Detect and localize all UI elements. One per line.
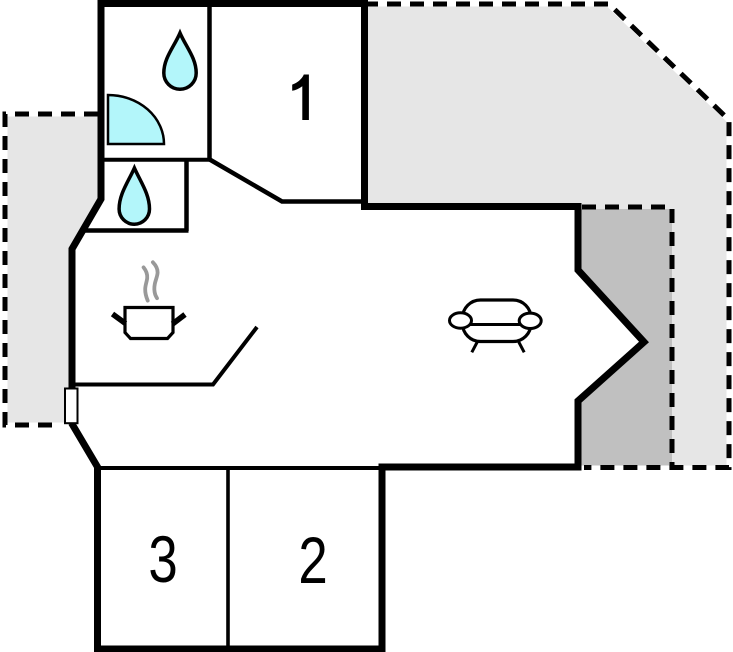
svg-text:3: 3 [148,522,177,596]
svg-text:2: 2 [298,523,327,597]
